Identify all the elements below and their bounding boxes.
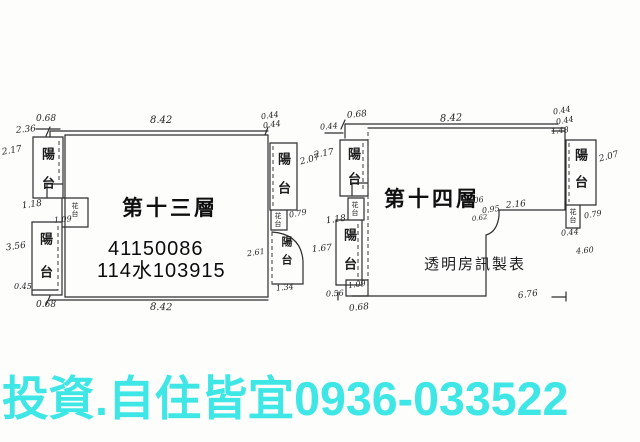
planter-label: 花台 <box>71 202 78 218</box>
dim-label: 0.44 <box>320 122 338 132</box>
dim-label: 8.42 <box>150 116 172 126</box>
dim-label: 0.44 <box>561 228 579 238</box>
dim-label: 0.68 <box>347 110 368 121</box>
planter-label: 花台 <box>569 208 576 224</box>
balcony-label: 陽台 <box>38 232 51 298</box>
dim-label: 1.67 <box>312 244 333 255</box>
dim-label: 8.42 <box>150 303 173 314</box>
floor-title-13: 第十三層 <box>122 197 218 218</box>
dim-label: 1.48 <box>551 126 569 136</box>
dim-label: 8.42 <box>440 113 463 124</box>
balcony-label: 陽台 <box>276 152 289 210</box>
maker-credit: 透明房訊製表 <box>424 257 526 272</box>
dim-label: 0.68 <box>36 115 56 124</box>
planter-label: 花台 <box>274 212 281 228</box>
dim-label: 0.45 <box>14 283 32 291</box>
planter-label: 花台 <box>351 201 358 217</box>
floorplan-scan: 0.68 2.36 8.42 0.44 0.44 2.17 1.18 1.09 … <box>0 0 640 442</box>
dim-label: 1.09 <box>54 215 72 225</box>
dim-label: 2.36 <box>16 125 37 136</box>
dim-label: 2.16 <box>506 200 527 211</box>
balcony-label: 陽台 <box>40 147 53 205</box>
balcony-label: 陽台 <box>346 147 359 197</box>
balcony-label: 陽台 <box>573 148 586 202</box>
dim-label: 0.56 <box>326 289 344 298</box>
floor-title-14: 第十四層 <box>384 188 480 209</box>
banner-text: 投資.自住皆宜0936-033522 <box>2 371 632 427</box>
stamp-number-line1: 41150086 <box>108 239 204 259</box>
dim-label: 4.60 <box>576 246 594 256</box>
stamp-number-line2: 114水103915 <box>97 261 226 281</box>
balcony-label: 陽台 <box>342 228 355 286</box>
dim-label: 0.68 <box>36 301 56 310</box>
balcony-label: 陽台 <box>281 236 292 272</box>
